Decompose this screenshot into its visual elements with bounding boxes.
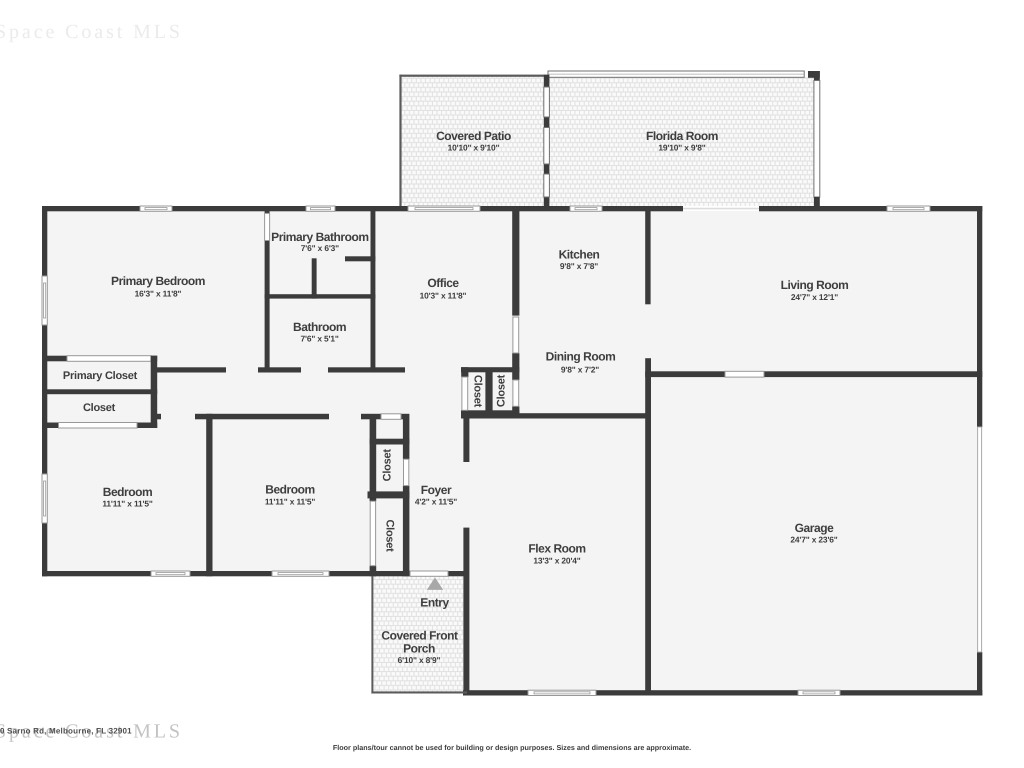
svg-text:10'10" x 9'10": 10'10" x 9'10" [448, 142, 500, 152]
svg-text:24'7" x 23'6": 24'7" x 23'6" [790, 534, 837, 544]
svg-text:Covered Front: Covered Front [381, 628, 458, 642]
svg-text:Kitchen: Kitchen [559, 247, 600, 261]
svg-text:Closet: Closet [83, 402, 116, 414]
svg-text:Garage: Garage [795, 521, 834, 535]
svg-text:9'8" x 7'2": 9'8" x 7'2" [561, 364, 599, 374]
svg-text:6'10" x 8'9": 6'10" x 8'9" [398, 655, 441, 665]
svg-text:Bathroom: Bathroom [293, 320, 346, 334]
svg-text:13'3" x 20'4": 13'3" x 20'4" [533, 555, 580, 565]
svg-text:Entry: Entry [420, 595, 449, 609]
svg-text:Flex Room: Flex Room [528, 541, 585, 555]
svg-text:Primary Bathroom: Primary Bathroom [271, 230, 369, 244]
svg-text:24'7" x 12'1": 24'7" x 12'1" [791, 292, 838, 302]
svg-text:Dining Room: Dining Room [546, 349, 616, 363]
svg-text:Bedroom: Bedroom [265, 482, 315, 496]
svg-text:10'3" x 11'8": 10'3" x 11'8" [420, 290, 467, 300]
svg-text:Primary Bedroom: Primary Bedroom [111, 274, 205, 288]
svg-text:7'6" x 6'3": 7'6" x 6'3" [301, 243, 339, 253]
svg-text:Office: Office [427, 276, 459, 290]
svg-text:Primary Closet: Primary Closet [63, 370, 138, 382]
svg-text:16'3" x 11'8": 16'3" x 11'8" [135, 288, 182, 298]
svg-text:Foyer: Foyer [421, 483, 452, 497]
svg-text:Covered Patio: Covered Patio [436, 129, 511, 143]
svg-text:9'8" x 7'8": 9'8" x 7'8" [560, 261, 598, 271]
svg-text:Porch: Porch [403, 641, 435, 655]
svg-text:Closet: Closet [382, 449, 394, 482]
svg-text:Closet: Closet [471, 375, 483, 408]
svg-text:11'11" x 11'5": 11'11" x 11'5" [265, 496, 316, 506]
svg-text:Closet: Closet [384, 519, 396, 552]
svg-text:1530 Sarno Rd, Melbourne, FL 3: 1530 Sarno Rd, Melbourne, FL 32901 [0, 727, 132, 736]
svg-text:Space Coast MLS: Space Coast MLS [0, 21, 183, 43]
svg-text:19'10" x 9'8": 19'10" x 9'8" [658, 142, 705, 152]
svg-text:4'2" x 11'5": 4'2" x 11'5" [415, 496, 457, 506]
svg-text:7'6" x 5'1": 7'6" x 5'1" [300, 333, 338, 343]
svg-text:Floor plans/tour cannot be use: Floor plans/tour cannot be used for buil… [333, 743, 691, 752]
svg-text:Bedroom: Bedroom [103, 485, 153, 499]
svg-text:Closet: Closet [496, 374, 508, 407]
svg-text:11'11" x 11'5": 11'11" x 11'5" [102, 498, 153, 508]
svg-text:Florida Room: Florida Room [646, 129, 718, 143]
svg-text:Living Room: Living Room [781, 278, 849, 292]
